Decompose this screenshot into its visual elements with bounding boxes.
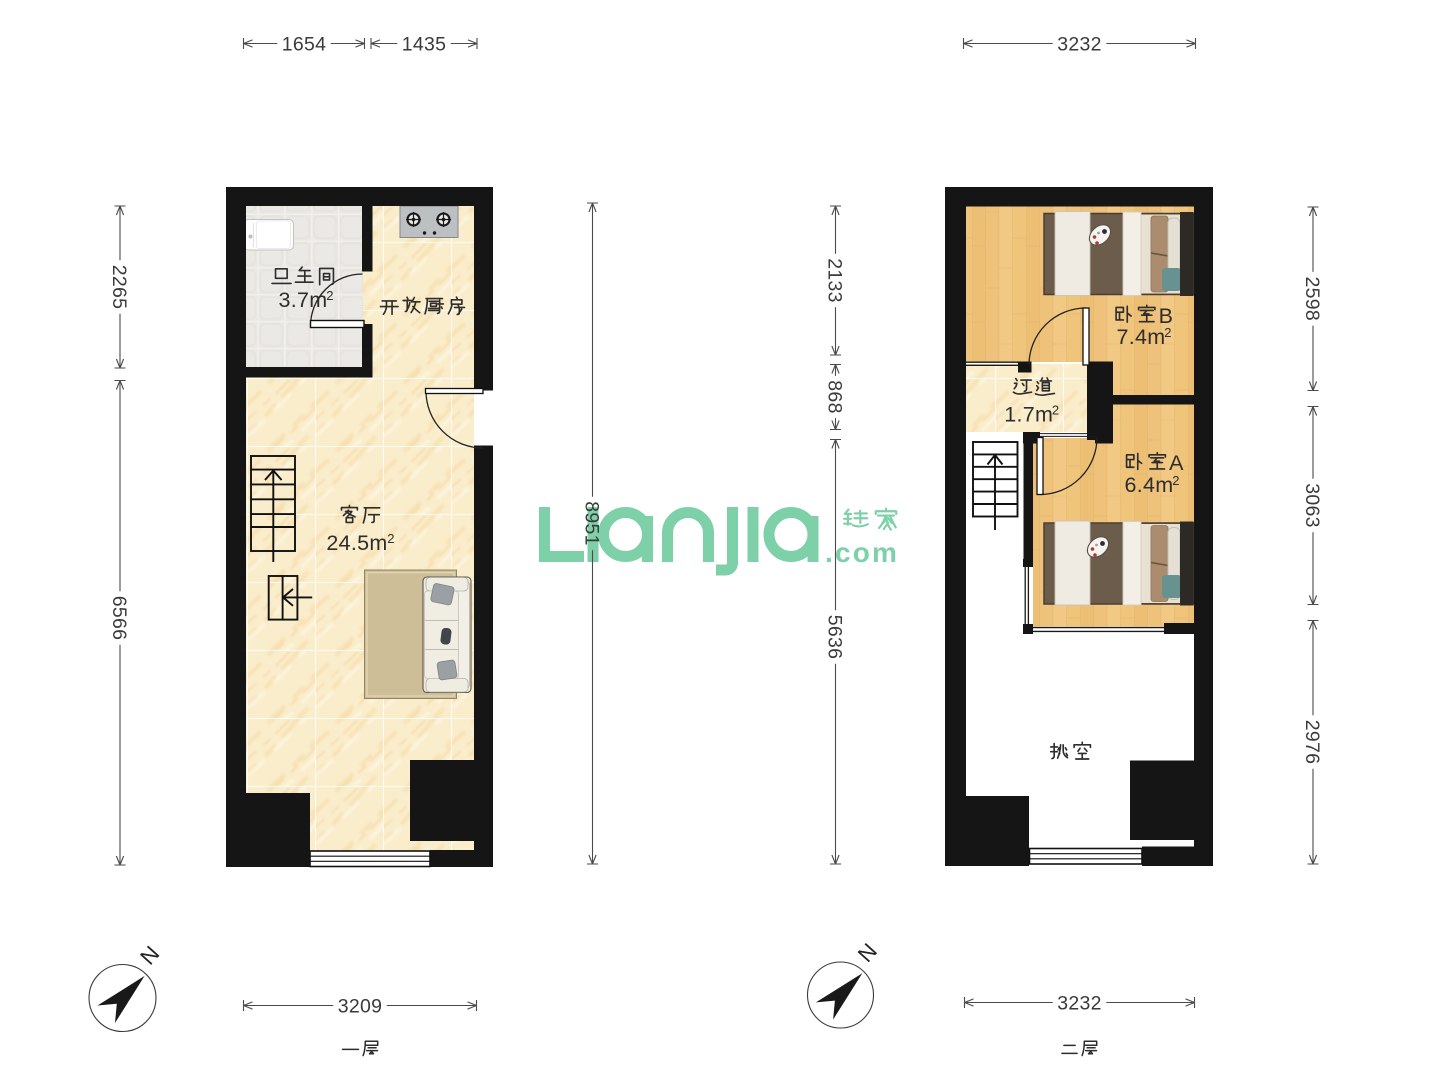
svg-text:8951: 8951 (581, 501, 603, 546)
svg-text:5636: 5636 (824, 615, 846, 660)
svg-text:2: 2 (1164, 325, 1172, 340)
svg-text:1.7m: 1.7m (1004, 403, 1053, 427)
svg-text:2265: 2265 (108, 265, 130, 310)
svg-text:2976: 2976 (1301, 720, 1323, 765)
svg-text:3063: 3063 (1301, 483, 1323, 528)
svg-text:1435: 1435 (402, 33, 447, 55)
svg-text:7.4m: 7.4m (1117, 325, 1166, 349)
svg-text:3.7m: 3.7m (279, 288, 328, 312)
svg-text:868: 868 (824, 380, 846, 413)
svg-text:.com: .com (825, 537, 899, 568)
svg-text:2: 2 (387, 531, 395, 546)
svg-text:2133: 2133 (824, 258, 846, 303)
svg-text:A: A (1169, 451, 1184, 475)
svg-text:6566: 6566 (108, 596, 130, 641)
svg-text:2: 2 (1052, 403, 1060, 418)
svg-text:2598: 2598 (1301, 276, 1323, 321)
svg-text:24.5m: 24.5m (326, 531, 387, 555)
svg-text:3232: 3232 (1057, 33, 1102, 55)
svg-text:3232: 3232 (1057, 992, 1102, 1014)
svg-text:2: 2 (1172, 473, 1180, 488)
svg-text:6.4m: 6.4m (1125, 473, 1174, 497)
svg-text:N: N (853, 938, 882, 967)
svg-text:N: N (135, 941, 164, 970)
svg-text:1654: 1654 (282, 33, 327, 55)
svg-text:2: 2 (326, 288, 334, 303)
svg-text:3209: 3209 (338, 995, 383, 1017)
